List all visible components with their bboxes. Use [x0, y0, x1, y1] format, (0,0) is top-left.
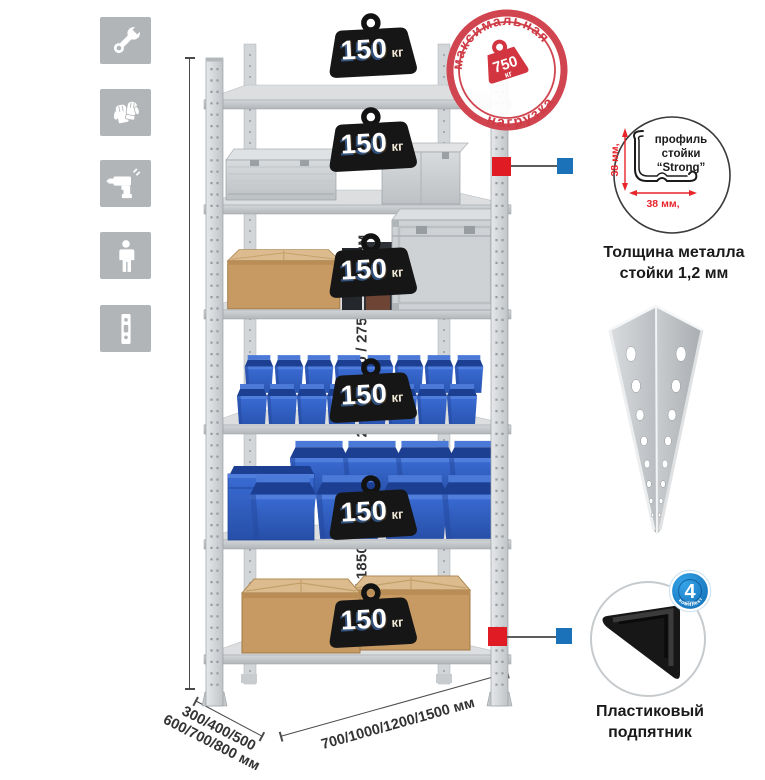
- foot-caption: Пластиковый подпятник: [580, 702, 720, 744]
- svg-text:профиль: профиль: [655, 134, 708, 146]
- product-infographic-page: { "assembly_icons": { "items": [ {"name"…: [0, 0, 765, 765]
- kit-quantity-badge: 4 штуки в комплекте: [670, 571, 711, 612]
- shelf-load-badge-6: 150кг: [324, 582, 420, 648]
- post-profile-detail: 38 мм, 38 мм, профиль стойки “Strong”: [596, 112, 748, 240]
- red-marker-top: [492, 157, 511, 176]
- blue-marker-top: [557, 158, 573, 174]
- person-icon: [100, 232, 151, 279]
- wrench-icon: [100, 17, 151, 64]
- connector-line-bottom: [502, 636, 559, 638]
- shelf-load-badge-4: 150кг: [324, 357, 420, 423]
- post-strip-icon: [100, 305, 151, 352]
- svg-text:“Strong”: “Strong”: [657, 162, 706, 174]
- height-dimension-line: 1600 / 1850 / 2000 / 2200 / 2350 / 2550 …: [189, 57, 190, 690]
- svg-text:38 мм,: 38 мм,: [609, 143, 621, 176]
- svg-text:38 мм,: 38 мм,: [646, 198, 679, 210]
- blue-marker-bottom: [556, 628, 572, 644]
- shelf-load-badge-5: 150кг: [324, 474, 420, 540]
- shelf-load-badge-3: 150кг: [324, 232, 420, 298]
- drill-icon: [100, 160, 151, 207]
- plastic-foot-detail: 4 штуки в комплекте: [586, 570, 720, 704]
- max-load-stamp: максимальная нагрузка 750 кг: [443, 6, 571, 134]
- profile-label: профиль стойки “Strong”: [655, 134, 708, 174]
- shelf-load-badge-2: 150кг: [324, 106, 420, 172]
- red-marker-bottom: [488, 627, 507, 646]
- connector-line-top: [505, 165, 560, 167]
- angle-post-image: [597, 298, 715, 543]
- svg-text:стойки: стойки: [662, 148, 701, 160]
- profile-caption: Толщина металла стойки 1,2 мм: [597, 243, 751, 285]
- gloves-icon: [100, 89, 151, 136]
- shelf-load-badge-1: 150кг: [324, 12, 420, 78]
